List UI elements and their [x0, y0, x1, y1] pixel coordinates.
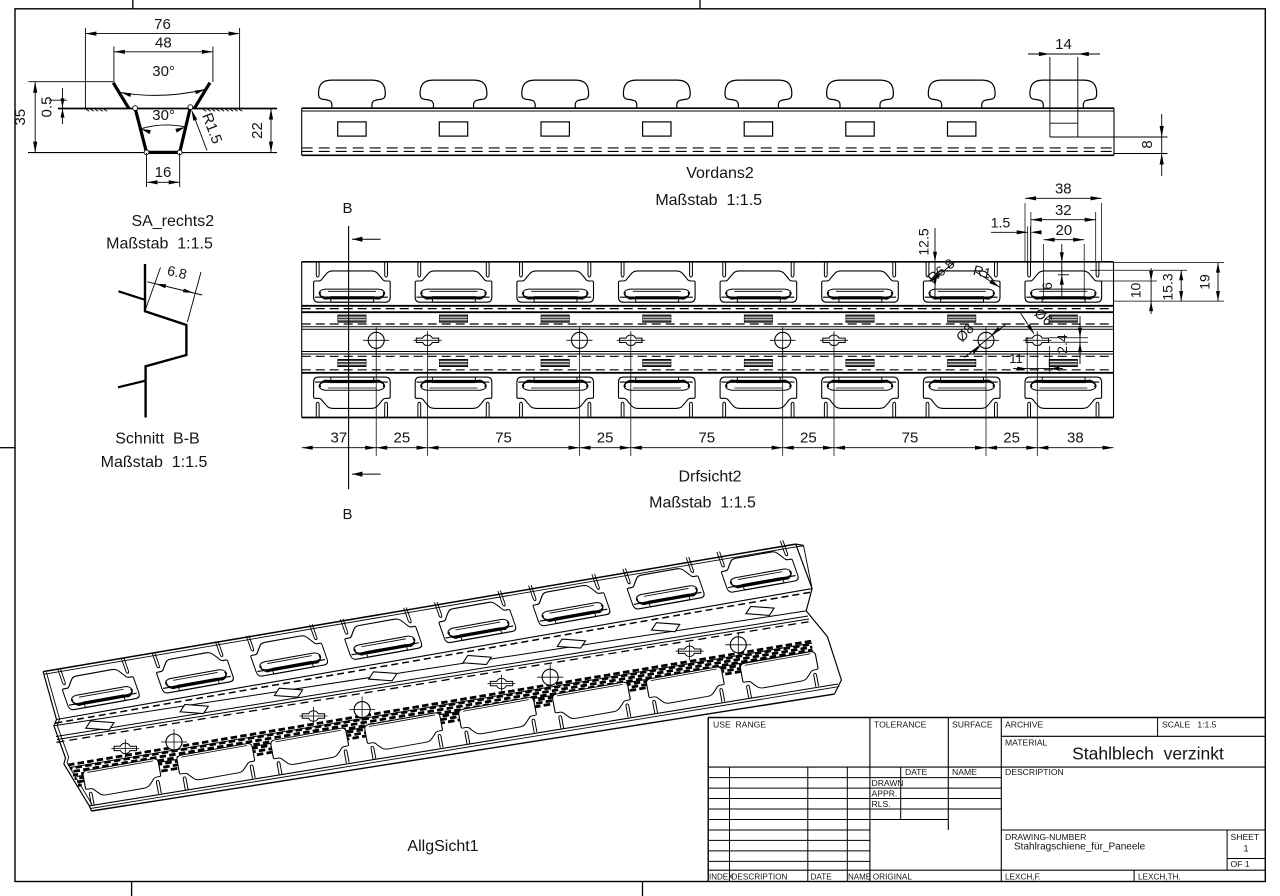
svg-text:Ø8: Ø8	[953, 320, 978, 345]
svg-text:SCALE 1:1.5: SCALE 1:1.5	[1162, 720, 1217, 730]
svg-text:37: 37	[331, 430, 348, 447]
svg-text:19: 19	[1197, 274, 1213, 290]
svg-text:Stahlragschiene_für_Paneele: Stahlragschiene_für_Paneele	[1014, 842, 1146, 853]
svg-text:Maßstab 1:1.5: Maßstab 1:1.5	[655, 192, 762, 209]
svg-text:14: 14	[1055, 36, 1072, 53]
svg-text:Schnitt B-B: Schnitt B-B	[115, 431, 199, 448]
svg-text:10: 10	[1128, 283, 1144, 299]
svg-text:Drfsicht2: Drfsicht2	[678, 469, 741, 486]
svg-text:DATE: DATE	[811, 872, 833, 881]
svg-text:NAME: NAME	[952, 767, 977, 777]
svg-text:0.5: 0.5	[39, 97, 56, 118]
svg-text:32: 32	[1055, 202, 1072, 219]
svg-text:SA_rechts2: SA_rechts2	[131, 213, 214, 230]
svg-text:NAME: NAME	[848, 872, 871, 881]
svg-text:DESCRIPTION: DESCRIPTION	[732, 872, 788, 881]
svg-text:SHEET: SHEET	[1231, 832, 1260, 842]
svg-text:Maßstab 1:1.5: Maßstab 1:1.5	[106, 236, 213, 253]
svg-text:AllgSicht1: AllgSicht1	[407, 838, 478, 855]
svg-text:11: 11	[1009, 351, 1023, 366]
svg-text:ORIGINAL: ORIGINAL	[873, 872, 913, 881]
svg-text:38: 38	[1067, 430, 1084, 447]
svg-text:INDEX: INDEX	[709, 872, 734, 881]
svg-text:TOLERANCE: TOLERANCE	[874, 720, 927, 730]
svg-text:OF 1: OF 1	[1231, 859, 1250, 869]
svg-text:RLS.: RLS.	[872, 799, 891, 809]
svg-text:2.4: 2.4	[1054, 334, 1070, 354]
svg-text:1: 1	[1243, 844, 1248, 854]
svg-text:1.5: 1.5	[991, 215, 1011, 231]
svg-text:76: 76	[154, 16, 171, 33]
svg-text:SURFACE: SURFACE	[952, 720, 993, 730]
svg-text:Stahlblech verzinkt: Stahlblech verzinkt	[1072, 744, 1224, 764]
svg-text:15.3: 15.3	[1160, 273, 1176, 300]
svg-text:DATE: DATE	[905, 767, 928, 777]
svg-text:20: 20	[1056, 222, 1073, 239]
svg-text:B: B	[342, 200, 352, 217]
svg-text:38: 38	[1055, 181, 1072, 198]
svg-text:6.8: 6.8	[166, 262, 189, 282]
svg-text:8: 8	[1139, 140, 1156, 148]
svg-text:35: 35	[12, 109, 29, 126]
svg-text:ARCHIVE: ARCHIVE	[1005, 720, 1043, 730]
svg-text:APPR.: APPR.	[872, 788, 898, 798]
svg-text:USE RANGE: USE RANGE	[713, 720, 766, 730]
svg-text:25: 25	[394, 430, 411, 447]
svg-text:30°: 30°	[152, 63, 175, 80]
svg-text:25: 25	[1003, 430, 1020, 447]
svg-text:48: 48	[155, 35, 172, 52]
svg-text:16: 16	[155, 164, 172, 181]
svg-text:12.5: 12.5	[916, 228, 932, 255]
svg-text:Maßstab 1:1.5: Maßstab 1:1.5	[101, 454, 208, 471]
svg-text:DRAWN: DRAWN	[872, 778, 904, 788]
svg-text:22: 22	[249, 122, 266, 139]
svg-text:DESCRIPTION: DESCRIPTION	[1005, 767, 1064, 777]
svg-text:75: 75	[698, 430, 715, 447]
svg-text:75: 75	[495, 430, 512, 447]
svg-text:25: 25	[597, 430, 614, 447]
svg-text:DRAWING-NUMBER: DRAWING-NUMBER	[1005, 832, 1086, 842]
svg-text:30°: 30°	[152, 107, 175, 124]
svg-text:75: 75	[902, 430, 919, 447]
svg-text:LEXCH,F.: LEXCH,F.	[1005, 872, 1041, 881]
svg-text:R1.5: R1.5	[198, 111, 225, 147]
svg-text:LEXCH,TH.: LEXCH,TH.	[1138, 872, 1181, 881]
svg-text:Maßstab 1:1.5: Maßstab 1:1.5	[649, 495, 756, 512]
svg-text:MATERIAL: MATERIAL	[1005, 738, 1048, 748]
svg-text:Vordans2: Vordans2	[686, 165, 754, 182]
svg-text:25: 25	[800, 430, 817, 447]
svg-text:6: 6	[1039, 282, 1055, 290]
svg-text:B: B	[342, 506, 352, 523]
